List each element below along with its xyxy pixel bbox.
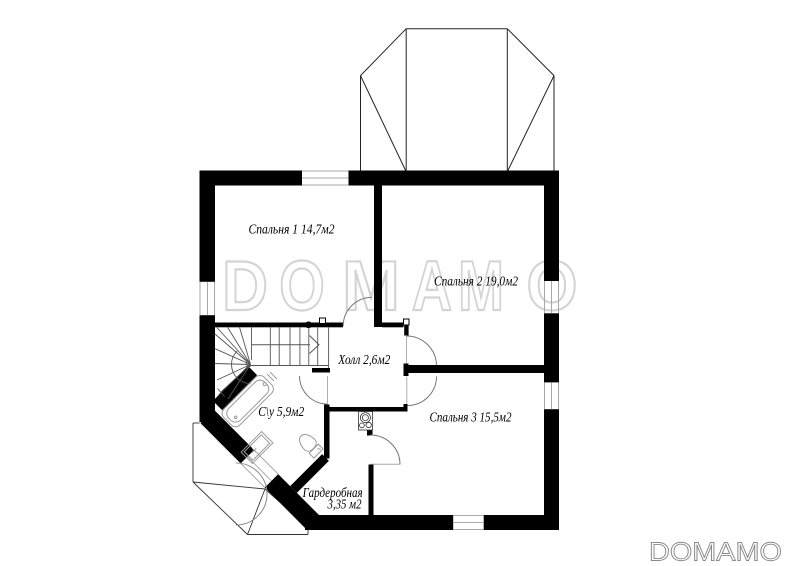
svg-text:Холл 2,6м2: Холл 2,6м2	[337, 352, 390, 367]
svg-text:Спальня 2 19,0м2: Спальня 2 19,0м2	[434, 274, 518, 289]
svg-text:3,35 м2: 3,35 м2	[327, 497, 362, 512]
svg-text:M: M	[342, 246, 400, 325]
svg-text:Спальня 1 14,7м2: Спальня 1 14,7м2	[249, 222, 335, 237]
svg-text:O: O	[279, 246, 325, 325]
svg-text:D: D	[222, 247, 268, 326]
svg-text:С\у 5,9м2: С\у 5,9м2	[258, 404, 304, 419]
svg-text:DOMAMO: DOMAMO	[649, 537, 782, 566]
svg-text:Спальня 3 15,5м2: Спальня 3 15,5м2	[430, 410, 512, 425]
